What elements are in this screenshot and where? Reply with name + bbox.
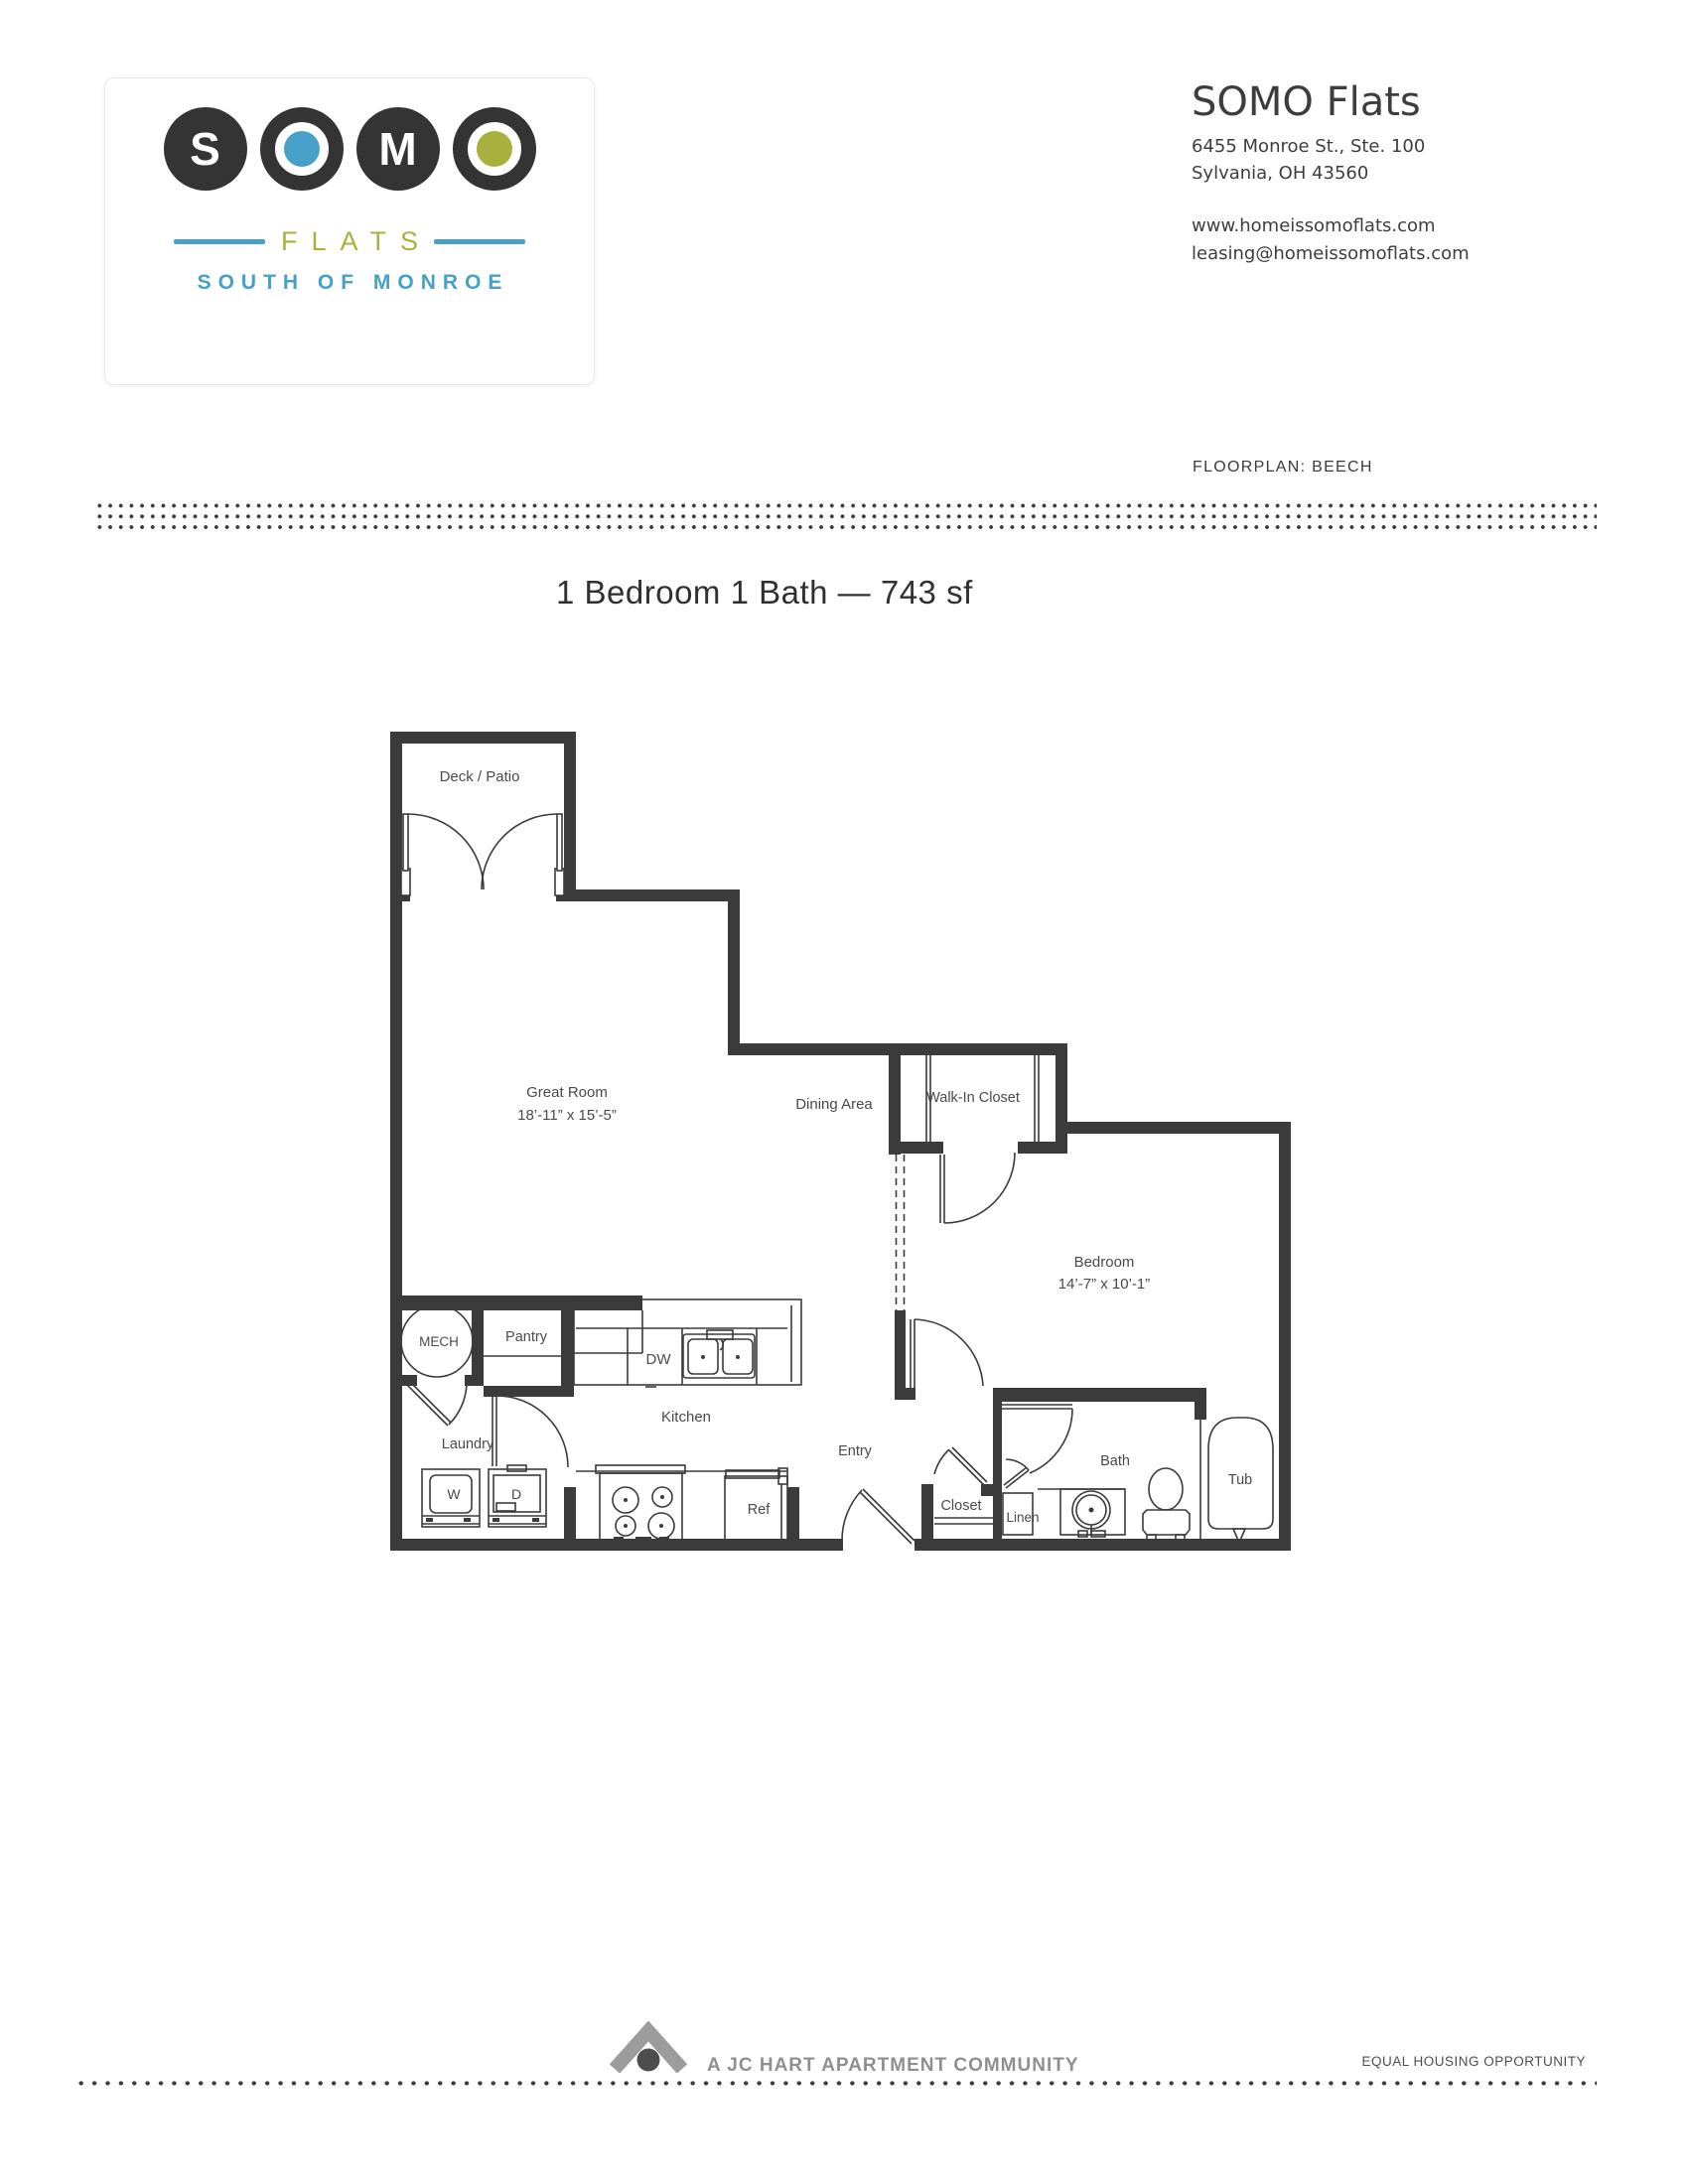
floorplan-flyer-page: S M FLATS SOUTH OF MONROE SOMO Flats 645… [0,0,1688,2184]
logo-letter-s: S [190,122,220,176]
olive-dot-icon [477,131,512,167]
equal-housing-text: EQUAL HOUSING OPPORTUNITY [1361,2054,1586,2069]
entry-door [842,1489,914,1544]
logo-circle-s: S [164,107,247,191]
somo-logo-card: S M FLATS SOUTH OF MONROE [104,77,595,385]
toilet [1143,1468,1190,1541]
walk-in-closet-door [940,1153,1015,1223]
blue-dot-icon [284,131,320,167]
walls [390,732,1291,1551]
somo-logo: S M [164,107,536,191]
room-label-great-room: Great Room [526,1084,608,1101]
flats-dash-left [174,239,265,244]
company-address: 6455 Monroe St., Ste. 100 Sylvania, OH 4… [1192,133,1470,187]
room-label-entry: Entry [838,1443,873,1459]
kitchen-sink [683,1330,755,1378]
company-contact: www.homeissomoflats.com leasing@homeisso… [1192,212,1470,268]
room-label-dw: DW [646,1351,672,1368]
room-label-walk-in-closet: Walk-In Closet [926,1090,1020,1106]
footer-dotted-divider [74,2077,1597,2090]
logo-circle-o-olive [453,107,536,191]
page-title: 1 Bedroom 1 Bath — 743 sf [556,574,973,612]
room-label-kitchen: Kitchen [661,1409,711,1426]
email-text: leasing@homeissomoflats.com [1192,240,1470,268]
company-name: SOMO Flats [1192,79,1470,125]
room-label-washer: W [447,1486,461,1502]
address-line1: 6455 Monroe St., Ste. 100 [1192,133,1470,160]
room-label-bedroom-dims: 14’-7” x 10’-1” [1058,1276,1151,1293]
room-label-pantry: Pantry [505,1329,548,1345]
room-label-mech: MECH [419,1334,459,1349]
room-label-closet: Closet [940,1498,981,1514]
room-label-ref: Ref [748,1502,772,1518]
logo-flats-text: FLATS [281,226,432,257]
logo-tagline: SOUTH OF MONROE [198,271,509,295]
logo-flats-row: FLATS [174,226,525,257]
flats-dash-right [434,239,525,244]
letterhead-block: SOMO Flats 6455 Monroe St., Ste. 100 Syl… [1192,79,1470,268]
room-label-deck-patio: Deck / Patio [440,768,520,785]
bedroom-door [911,1319,983,1388]
bedroom-sliding-door [894,1155,907,1310]
room-label-dryer: D [511,1486,521,1502]
jc-hart-house-icon [609,2021,692,2073]
floor-plan-drawing: Deck / PatioGreat Room18’-11” x 15’-5”Di… [387,730,1296,1554]
address-line2: Sylvania, OH 43560 [1192,160,1470,187]
room-label-bath: Bath [1100,1453,1130,1469]
laundry-door [492,1396,568,1467]
room-label-tub: Tub [1228,1472,1252,1488]
logo-circle-m: M [356,107,440,191]
logo-letter-m: M [378,122,416,176]
stove [596,1465,685,1545]
room-label-great-room-dims: 18’-11” x 15’-5” [517,1107,617,1124]
room-label-bedroom: Bedroom [1074,1254,1135,1271]
bath-vanity-sink [1038,1489,1125,1537]
logo-circle-o-blue [260,107,344,191]
room-label-laundry: Laundry [442,1436,494,1452]
room-label-dining-area: Dining Area [795,1096,873,1113]
community-tagline: A JC HART APARTMENT COMMUNITY [707,2055,1079,2077]
mech-water-heater [401,1305,473,1426]
website-text: www.homeissomoflats.com [1192,212,1470,240]
header-dotted-divider [94,500,1597,532]
bath-door [1001,1405,1072,1473]
room-label-linen: Linen [1006,1510,1039,1525]
floorplan-name-label: FLOORPLAN: BEECH [1193,459,1373,477]
patio-french-doors [401,814,564,895]
